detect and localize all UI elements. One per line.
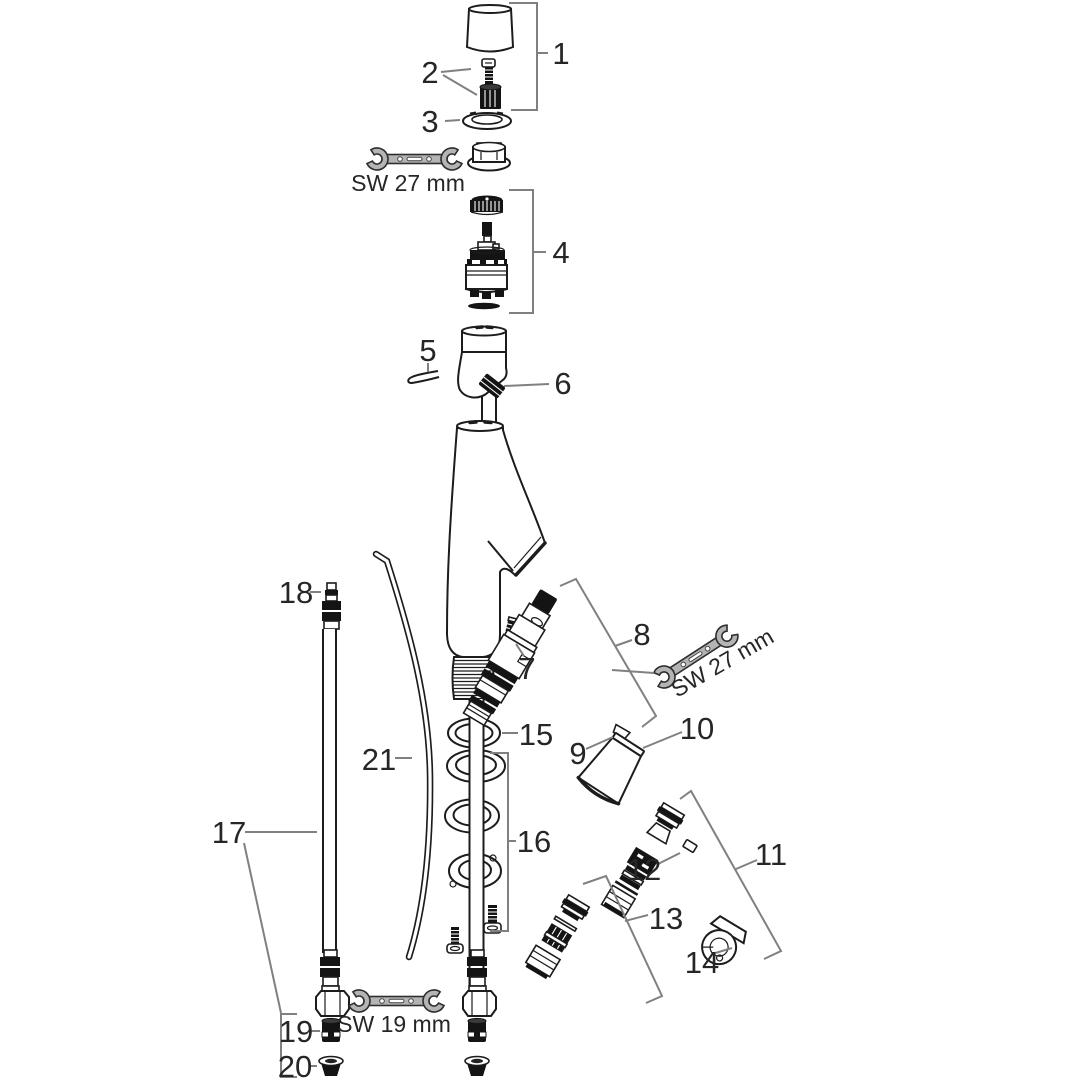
part-5-clip xyxy=(408,371,439,383)
part-4-cartridge xyxy=(466,196,507,310)
bracket-16 xyxy=(490,753,516,931)
part-label-7: 7 xyxy=(518,651,535,686)
leader-12 xyxy=(658,853,680,864)
tool-label-sw27-top: SW 27 mm xyxy=(351,170,465,196)
part-3-ring xyxy=(463,113,511,130)
part-2-screw-and-sleeve xyxy=(480,59,501,109)
part-label-15: 15 xyxy=(519,717,553,752)
part-label-8: 8 xyxy=(633,617,650,652)
leader-2 xyxy=(441,69,477,95)
part-label-10: 10 xyxy=(680,711,714,746)
bracket-1 xyxy=(509,3,548,110)
tool-label-sw19-bottom: SW 19 mm xyxy=(337,1011,451,1037)
supply-tube xyxy=(470,699,484,992)
part-label-11: 11 xyxy=(755,837,787,872)
hose-coupling-left xyxy=(316,950,349,1016)
part-label-9: 9 xyxy=(569,736,586,771)
part-label-19: 19 xyxy=(279,1014,313,1049)
leader-10 xyxy=(643,732,682,748)
part-10-spout-end xyxy=(576,729,650,807)
wrench-sw27-top xyxy=(366,146,463,172)
part-label-6: 6 xyxy=(554,366,571,401)
part-label-1: 1 xyxy=(552,36,569,71)
part-label-12: 12 xyxy=(627,852,661,887)
diagram-canvas: 1 2 3 4 5 6 7 8 9 10 11 12 13 14 15 16 1… xyxy=(0,0,1080,1080)
part-1-handle-cone xyxy=(467,5,513,52)
part-label-17: 17 xyxy=(212,815,246,850)
part-label-18: 18 xyxy=(279,575,313,610)
leader-6 xyxy=(504,384,549,386)
part-label-16: 16 xyxy=(517,824,551,859)
bracket-4 xyxy=(509,190,546,313)
part-label-21: 21 xyxy=(362,742,396,777)
exploded-parts-diagram: 1 2 3 4 5 6 7 8 9 10 11 12 13 14 15 16 1… xyxy=(0,0,1080,1080)
leader-17 xyxy=(244,832,317,1013)
part-label-20: 20 xyxy=(278,1049,312,1080)
part-label-14: 14 xyxy=(685,945,719,980)
part-label-5: 5 xyxy=(419,333,436,368)
part-19-plug-right xyxy=(468,1018,486,1042)
part-label-13: 13 xyxy=(649,901,683,936)
part-label-3: 3 xyxy=(421,104,438,139)
part-20-cap-right xyxy=(465,1057,489,1077)
part-label-4: 4 xyxy=(552,235,569,270)
part-20-cap-left xyxy=(319,1057,343,1077)
leader-3 xyxy=(445,120,460,121)
supply-tube-coupling xyxy=(463,950,496,1016)
part-label-2: 2 xyxy=(421,55,438,90)
bracket-8 xyxy=(560,579,656,727)
part-12-seal xyxy=(683,839,697,852)
part-6-spout-head xyxy=(458,327,507,427)
part-17-hose xyxy=(322,583,341,953)
part-13-insert-stack xyxy=(524,894,591,980)
mounting-nut xyxy=(468,143,510,171)
leader-wrench-side xyxy=(612,670,654,673)
